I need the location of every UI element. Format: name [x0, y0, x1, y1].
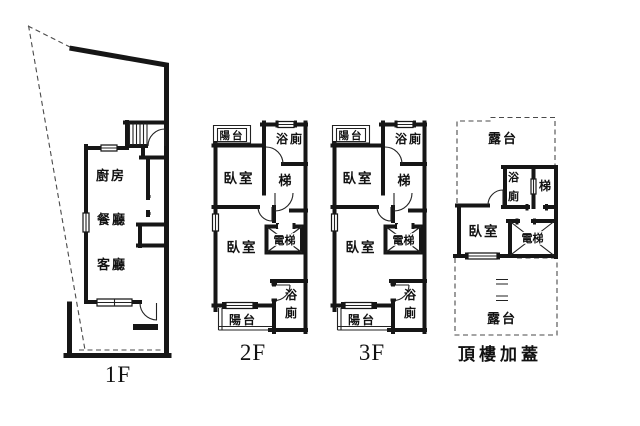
room-label-stair: 梯	[539, 178, 551, 193]
room-label-bedroom-top: 臥室	[224, 170, 255, 186]
room-label-dining: 餐廳	[96, 212, 127, 227]
room-label-bedroom-top: 臥室	[343, 170, 374, 186]
room-label-bath-1: 浴	[508, 170, 520, 184]
floor-plan-svg: 廚房 餐廳 客廳 1F 陽台 浴廁 臥室 梯 電梯 臥室 浴 廁 陽台 2F 陽…	[0, 0, 640, 426]
room-label-bath-top: 浴廁	[276, 131, 304, 146]
room-label-bath-bottom-2: 廁	[404, 305, 416, 320]
room-label-kitchen: 廚房	[96, 168, 126, 183]
room-label-elevator: 電梯	[274, 233, 296, 247]
plan-roof: 露台 浴 廁 梯 臥室 電梯 露台 頂樓加蓋	[455, 118, 557, 365]
room-label-terrace-top: 露台	[488, 131, 518, 146]
elevator-door-gap	[397, 224, 411, 229]
room-label-balcony-top: 陽台	[339, 129, 364, 142]
room-label-balcony-top: 陽台	[220, 129, 245, 142]
floor-label-1f: 1F	[105, 362, 131, 387]
plan-2f: 陽台 浴廁 臥室 梯 電梯 臥室 浴 廁 陽台 2F	[213, 121, 307, 366]
floor-label-2f: 2F	[240, 340, 266, 365]
floor-plan-figure: 廚房 餐廳 客廳 1F 陽台 浴廁 臥室 梯 電梯 臥室 浴 廁 陽台 2F 陽…	[0, 0, 640, 426]
room-label-bath-top: 浴廁	[395, 131, 423, 146]
room-label-bath-bottom-1: 浴	[285, 287, 298, 302]
floor-label-roof: 頂樓加蓋	[458, 344, 542, 364]
room-label-bath-bottom-2: 廁	[285, 305, 297, 320]
plan-3f: 陽台 浴廁 臥室 梯 電梯 臥室 浴 廁 陽台 3F	[332, 121, 426, 366]
room-label-terrace-bottom: 露台	[487, 311, 517, 326]
room-label-bedroom: 臥室	[469, 223, 500, 239]
elevator-door-gap	[278, 224, 292, 229]
room-label-balcony-bottom: 陽台	[229, 312, 257, 327]
room-label-bedroom-bottom: 臥室	[227, 239, 258, 255]
windows	[468, 179, 536, 259]
floor-label-3f: 3F	[359, 340, 385, 365]
room-label-elevator: 電梯	[522, 231, 544, 245]
room-label-living: 客廳	[97, 257, 127, 272]
room-label-elevator: 電梯	[393, 233, 415, 247]
outer-walls	[66, 49, 169, 356]
room-label-bedroom-bottom: 臥室	[346, 239, 377, 255]
room-label-stair: 梯	[397, 173, 410, 188]
plan-1f: 廚房 餐廳 客廳 1F	[28, 26, 169, 388]
room-label-stair: 梯	[278, 173, 291, 188]
room-label-bath-2: 廁	[508, 189, 519, 203]
room-label-balcony-bottom: 陽台	[348, 312, 376, 327]
door-jambs-porch-step	[133, 195, 158, 330]
room-label-bath-bottom-1: 浴	[404, 287, 417, 302]
